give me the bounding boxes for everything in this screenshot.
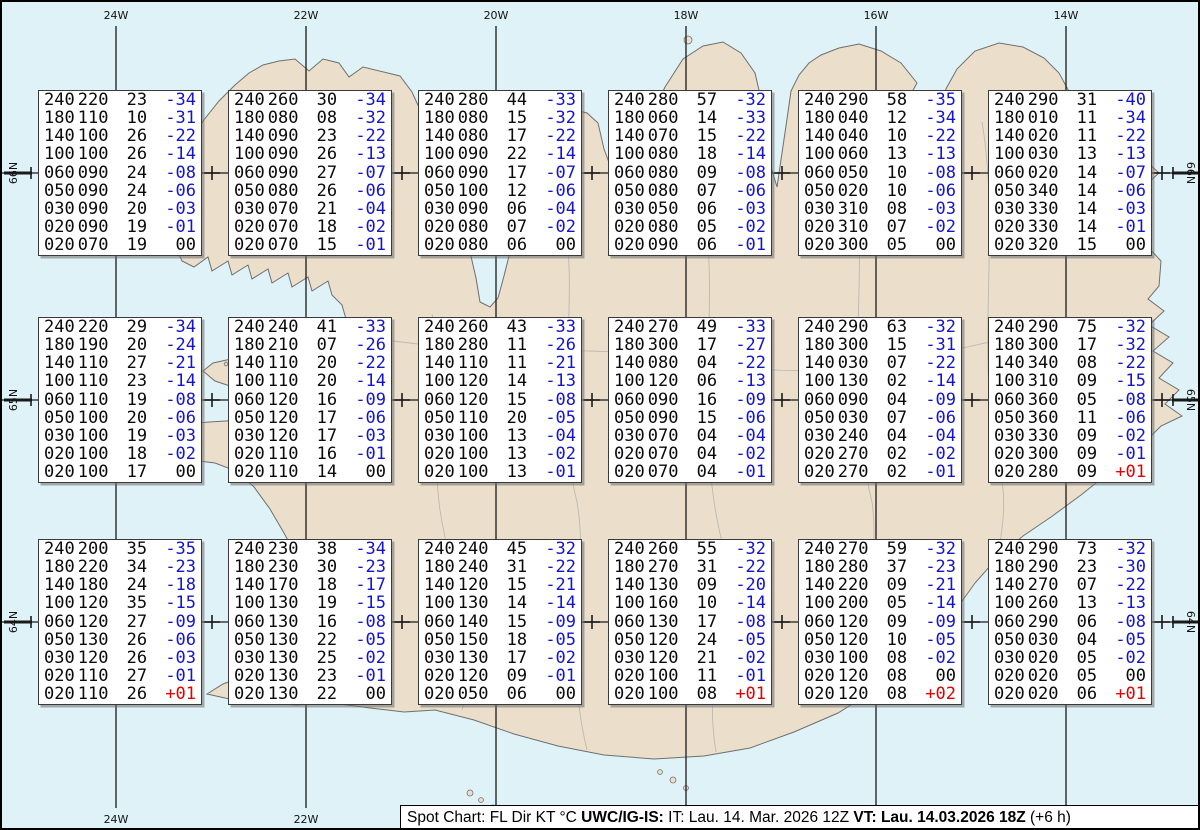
- fl-value: 020: [804, 237, 835, 255]
- fl-value: 100: [424, 373, 455, 391]
- caption-segment: Spot Chart: FL Dir KT °C: [407, 809, 581, 827]
- fl-value: 030: [44, 428, 75, 446]
- temp-value: -06: [545, 183, 576, 201]
- spot-table: 24029073-3218029023-3014027007-221002601…: [988, 539, 1152, 705]
- fl-value: 060: [614, 392, 645, 410]
- dir-value: 120: [458, 392, 489, 410]
- kt-value: 14: [1077, 183, 1097, 201]
- spot-row: 10013019-15: [234, 595, 386, 613]
- dir-value: 290: [1028, 614, 1059, 632]
- lon-label-top: 16W: [864, 9, 889, 22]
- temp-value: +01: [735, 686, 766, 704]
- spot-row: 06002014-07: [994, 165, 1146, 183]
- fl-value: 030: [614, 428, 645, 446]
- spot-row: 03012017-03: [234, 428, 386, 446]
- temp-value: -05: [545, 632, 576, 650]
- temp-value: -09: [165, 614, 196, 632]
- kt-value: 06: [697, 201, 717, 219]
- temp-value: -06: [735, 183, 766, 201]
- fl-value: 060: [424, 392, 455, 410]
- fl-value: 060: [994, 165, 1025, 183]
- kt-value: 20: [127, 410, 147, 428]
- fl-value: 030: [424, 201, 455, 219]
- spot-row: 0201101400: [234, 464, 386, 482]
- fl-value: 020: [804, 464, 835, 482]
- spot-row: 05013026-06: [44, 632, 196, 650]
- dir-value: 130: [268, 650, 299, 668]
- fl-value: 030: [994, 650, 1025, 668]
- temp-value: -14: [165, 146, 196, 164]
- spot-row: 03009020-03: [44, 201, 196, 219]
- spot-row: 03007004-04: [614, 428, 766, 446]
- fl-value: 050: [614, 410, 645, 428]
- fl-value: 030: [804, 201, 835, 219]
- dir-value: 130: [268, 595, 299, 613]
- temp-value: -07: [355, 165, 386, 183]
- kt-value: 21: [317, 201, 337, 219]
- spot-row: 06011019-08: [44, 392, 196, 410]
- temp-value: -08: [545, 392, 576, 410]
- kt-value: 10: [887, 632, 907, 650]
- kt-value: 16: [317, 392, 337, 410]
- kt-value: 18: [507, 632, 527, 650]
- spot-row: 02010013-01: [424, 464, 576, 482]
- spot-row: 02007015-01: [234, 237, 386, 255]
- temp-value: -08: [165, 392, 196, 410]
- kt-value: 07: [887, 410, 907, 428]
- fl-value: 060: [804, 392, 835, 410]
- fl-value: 020: [234, 464, 265, 482]
- temp-value: -14: [735, 146, 766, 164]
- spot-table: 24027049-3318030017-2714008004-221001200…: [608, 317, 772, 483]
- kt-value: 21: [697, 650, 717, 668]
- lon-label-bottom: 22W: [294, 813, 319, 826]
- kt-value: 08: [887, 201, 907, 219]
- kt-value: 09: [887, 614, 907, 632]
- dir-value: 070: [268, 237, 299, 255]
- temp-value: -09: [545, 614, 576, 632]
- dir-value: 200: [838, 595, 869, 613]
- temp-value: -05: [545, 410, 576, 428]
- fl-value: 050: [804, 410, 835, 428]
- fl-value: 020: [234, 237, 265, 255]
- spot-table: 24029075-3218030017-3214034008-221003100…: [988, 317, 1152, 483]
- temp-value: -06: [165, 632, 196, 650]
- caption-bar: Spot Chart: FL Dir KT °C UWC/IG-IS: IT: …: [400, 805, 1200, 830]
- lat-label-left: 66N: [7, 162, 20, 184]
- temp-value: -04: [735, 428, 766, 446]
- fl-value: 060: [994, 392, 1025, 410]
- temp-value: -04: [545, 428, 576, 446]
- fl-value: 060: [614, 165, 645, 183]
- spot-row: 06009016-09: [614, 392, 766, 410]
- temp-value: 00: [545, 237, 576, 255]
- dir-value: 310: [838, 201, 869, 219]
- temp-value: -06: [925, 183, 956, 201]
- spot-table: 24026043-3318028011-2614011011-211001201…: [418, 317, 582, 483]
- fl-value: 030: [234, 201, 265, 219]
- spot-row: 10012035-15: [44, 595, 196, 613]
- dir-value: 110: [268, 373, 299, 391]
- spot-row: 05034014-06: [994, 183, 1146, 201]
- temp-value: 00: [545, 686, 576, 704]
- kt-value: 13: [1077, 146, 1097, 164]
- fl-value: 030: [614, 201, 645, 219]
- fl-value: 030: [804, 428, 835, 446]
- spot-table: 24029063-3218030015-3114003007-221001300…: [798, 317, 962, 483]
- kt-value: 06: [507, 686, 527, 704]
- temp-value: 00: [165, 237, 196, 255]
- dir-value: 080: [648, 165, 679, 183]
- temp-value: -06: [355, 410, 386, 428]
- dir-value: 090: [838, 392, 869, 410]
- lat-label-right: 66N: [1184, 162, 1197, 184]
- fl-value: 020: [804, 686, 835, 704]
- kt-value: 05: [1077, 650, 1097, 668]
- dir-value: 100: [78, 410, 109, 428]
- kt-value: 06: [1077, 614, 1097, 632]
- spot-row: 03031008-03: [804, 201, 956, 219]
- kt-value: 15: [507, 392, 527, 410]
- fl-value: 050: [44, 183, 75, 201]
- spot-row: 10012014-13: [424, 373, 576, 391]
- spot-row: 05011020-05: [424, 410, 576, 428]
- temp-value: 00: [355, 686, 386, 704]
- dir-value: 110: [458, 410, 489, 428]
- fl-value: 100: [424, 595, 455, 613]
- kt-value: 05: [887, 237, 907, 255]
- spot-row: 10006013-13: [804, 146, 956, 164]
- spot-table: 24023038-3418023030-2314017018-171001301…: [228, 539, 392, 705]
- kt-value: 06: [1077, 686, 1097, 704]
- spot-row: 05012024-05: [614, 632, 766, 650]
- kt-value: 02: [887, 373, 907, 391]
- spot-row: 02027002-01: [804, 464, 956, 482]
- dir-value: 300: [838, 237, 869, 255]
- temp-value: -08: [355, 614, 386, 632]
- dir-value: 100: [78, 146, 109, 164]
- spot-row: 10003013-13: [994, 146, 1146, 164]
- dir-value: 090: [458, 146, 489, 164]
- temp-value: -15: [165, 595, 196, 613]
- kt-value: 14: [1077, 201, 1097, 219]
- temp-value: -02: [1115, 428, 1146, 446]
- dir-value: 360: [1028, 392, 1059, 410]
- kt-value: 25: [317, 650, 337, 668]
- spot-row: 03024004-04: [804, 428, 956, 446]
- fl-value: 060: [234, 165, 265, 183]
- dir-value: 090: [648, 410, 679, 428]
- kt-value: 18: [697, 146, 717, 164]
- spot-row: 06013017-08: [614, 614, 766, 632]
- fl-value: 020: [424, 464, 455, 482]
- temp-value: -02: [1115, 650, 1146, 668]
- dir-value: 120: [838, 686, 869, 704]
- dir-value: 100: [458, 464, 489, 482]
- fl-value: 100: [234, 146, 265, 164]
- dir-value: 150: [458, 632, 489, 650]
- temp-value: -04: [925, 428, 956, 446]
- dir-value: 130: [268, 632, 299, 650]
- spot-row: 06009027-07: [234, 165, 386, 183]
- spot-row: 10009026-13: [234, 146, 386, 164]
- dir-value: 020: [838, 183, 869, 201]
- spot-row: 02012008+02: [804, 686, 956, 704]
- dir-value: 100: [838, 650, 869, 668]
- dir-value: 110: [78, 392, 109, 410]
- spot-row: 05015018-05: [424, 632, 576, 650]
- dir-value: 130: [838, 373, 869, 391]
- temp-value: +02: [925, 686, 956, 704]
- fl-value: 050: [44, 632, 75, 650]
- kt-value: 17: [697, 614, 717, 632]
- fl-value: 020: [614, 237, 645, 255]
- spot-row: 03033014-03: [994, 201, 1146, 219]
- temp-value: -01: [735, 464, 766, 482]
- spot-row: 03007021-04: [234, 201, 386, 219]
- kt-value: 27: [317, 165, 337, 183]
- dir-value: 270: [838, 464, 869, 482]
- fl-value: 100: [44, 595, 75, 613]
- dir-value: 090: [268, 165, 299, 183]
- temp-value: +01: [165, 686, 196, 704]
- kt-value: 20: [127, 201, 147, 219]
- dir-value: 080: [648, 146, 679, 164]
- kt-value: 15: [697, 410, 717, 428]
- dir-value: 090: [268, 146, 299, 164]
- temp-value: -09: [925, 392, 956, 410]
- dir-value: 120: [458, 373, 489, 391]
- kt-value: 24: [697, 632, 717, 650]
- temp-value: -06: [925, 410, 956, 428]
- kt-value: 15: [507, 614, 527, 632]
- temp-value: 00: [1115, 237, 1146, 255]
- dir-value: 330: [1028, 201, 1059, 219]
- temp-value: -02: [925, 650, 956, 668]
- spot-row: 05009015-06: [614, 410, 766, 428]
- fl-value: 050: [994, 183, 1025, 201]
- lat-label-right: 65N: [1184, 389, 1197, 411]
- kt-value: 19: [127, 237, 147, 255]
- fl-value: 100: [44, 373, 75, 391]
- fl-value: 100: [994, 595, 1025, 613]
- dir-value: 330: [1028, 428, 1059, 446]
- kt-value: 22: [317, 632, 337, 650]
- spot-row: 0201001700: [44, 464, 196, 482]
- temp-value: -14: [545, 595, 576, 613]
- fl-value: 100: [44, 146, 75, 164]
- spot-row: 03013017-02: [424, 650, 576, 668]
- fl-value: 100: [234, 595, 265, 613]
- temp-value: -04: [545, 201, 576, 219]
- spot-table: 24022023-3418011010-3114010026-221001002…: [38, 90, 202, 256]
- fl-value: 060: [44, 614, 75, 632]
- lat-label-left: 65N: [7, 389, 20, 411]
- fl-value: 030: [44, 201, 75, 219]
- temp-value: -01: [355, 237, 386, 255]
- caption-segment: UWC/IG-IS:: [581, 809, 664, 827]
- temp-value: -06: [1115, 183, 1146, 201]
- spot-row: 06012015-08: [424, 392, 576, 410]
- spot-row: 0201302200: [234, 686, 386, 704]
- kt-value: 17: [507, 165, 527, 183]
- kt-value: 17: [127, 464, 147, 482]
- temp-value: -14: [735, 595, 766, 613]
- dir-value: 240: [838, 428, 869, 446]
- lon-label-top: 24W: [104, 9, 129, 22]
- dir-value: 090: [458, 201, 489, 219]
- fl-value: 060: [44, 165, 75, 183]
- dir-value: 020: [1028, 686, 1059, 704]
- spot-row: 02007004-01: [614, 464, 766, 482]
- fl-value: 020: [424, 237, 455, 255]
- spot-row: 10020005-14: [804, 595, 956, 613]
- kt-value: 13: [887, 146, 907, 164]
- spot-row: 05012017-06: [234, 410, 386, 428]
- fl-value: 050: [424, 632, 455, 650]
- spot-row: 03033009-02: [994, 428, 1146, 446]
- spot-row: 05003007-06: [804, 410, 956, 428]
- spot-row: 02010008+01: [614, 686, 766, 704]
- temp-value: -03: [165, 428, 196, 446]
- dir-value: 050: [838, 165, 869, 183]
- fl-value: 100: [994, 146, 1025, 164]
- dir-value: 310: [1028, 373, 1059, 391]
- temp-value: -07: [545, 165, 576, 183]
- spot-row: 10013002-14: [804, 373, 956, 391]
- kt-value: 02: [887, 464, 907, 482]
- kt-value: 17: [317, 410, 337, 428]
- dir-value: 030: [1028, 146, 1059, 164]
- temp-value: 00: [165, 464, 196, 482]
- dir-value: 110: [78, 373, 109, 391]
- temp-value: -01: [545, 464, 576, 482]
- kt-value: 19: [127, 428, 147, 446]
- spot-row: 10011023-14: [44, 373, 196, 391]
- spot-row: 05013022-05: [234, 632, 386, 650]
- dir-value: 120: [838, 614, 869, 632]
- fl-value: 060: [424, 614, 455, 632]
- temp-value: -05: [1115, 632, 1146, 650]
- fl-value: 030: [804, 650, 835, 668]
- kt-value: 27: [127, 614, 147, 632]
- kt-value: 19: [127, 392, 147, 410]
- temp-value: -03: [165, 201, 196, 219]
- temp-value: -14: [355, 373, 386, 391]
- kt-value: 07: [697, 183, 717, 201]
- temp-value: -06: [735, 410, 766, 428]
- fl-value: 030: [994, 201, 1025, 219]
- kt-value: 06: [507, 237, 527, 255]
- kt-value: 14: [507, 595, 527, 613]
- dir-value: 090: [78, 165, 109, 183]
- spot-table: 24020035-3518022034-2314018024-181001203…: [38, 539, 202, 705]
- kt-value: 26: [127, 686, 147, 704]
- dir-value: 090: [648, 392, 679, 410]
- fl-value: 050: [994, 632, 1025, 650]
- dir-value: 030: [1028, 632, 1059, 650]
- kt-value: 05: [1077, 392, 1097, 410]
- temp-value: -05: [355, 632, 386, 650]
- fl-value: 030: [234, 428, 265, 446]
- dir-value: 050: [648, 201, 679, 219]
- temp-value: -05: [925, 632, 956, 650]
- fl-value: 060: [424, 165, 455, 183]
- dir-value: 120: [648, 632, 679, 650]
- dir-value: 100: [458, 183, 489, 201]
- temp-value: -13: [1115, 595, 1146, 613]
- dir-value: 100: [648, 686, 679, 704]
- dir-value: 080: [268, 183, 299, 201]
- kt-value: 13: [1077, 595, 1097, 613]
- lat-label-right: 64N: [1184, 611, 1197, 633]
- fl-value: 050: [804, 183, 835, 201]
- fl-value: 020: [614, 464, 645, 482]
- dir-value: 070: [648, 428, 679, 446]
- temp-value: 00: [355, 464, 386, 482]
- fl-value: 020: [44, 237, 75, 255]
- spot-row: 06008009-08: [614, 165, 766, 183]
- temp-value: -06: [355, 183, 386, 201]
- caption-segment: VT: Lau. 14.03.2026 18Z: [853, 809, 1025, 827]
- kt-value: 04: [1077, 632, 1097, 650]
- kt-value: 11: [1077, 410, 1097, 428]
- lon-label-top: 18W: [674, 9, 699, 22]
- kt-value: 26: [317, 183, 337, 201]
- dir-value: 120: [268, 392, 299, 410]
- fl-value: 030: [44, 650, 75, 668]
- spot-row: 0200500600: [424, 686, 576, 704]
- fl-value: 100: [614, 146, 645, 164]
- dir-value: 020: [1028, 165, 1059, 183]
- spot-row: 0200701900: [44, 237, 196, 255]
- kt-value: 04: [887, 428, 907, 446]
- fl-value: 020: [234, 686, 265, 704]
- kt-value: 08: [697, 686, 717, 704]
- kt-value: 14: [317, 464, 337, 482]
- fl-value: 100: [234, 373, 265, 391]
- dir-value: 160: [648, 595, 679, 613]
- kt-value: 04: [697, 464, 717, 482]
- temp-value: -03: [925, 201, 956, 219]
- dir-value: 130: [648, 614, 679, 632]
- dir-value: 080: [648, 183, 679, 201]
- temp-value: -09: [735, 392, 766, 410]
- dir-value: 280: [1028, 464, 1059, 482]
- kt-value: 06: [697, 237, 717, 255]
- kt-value: 26: [317, 146, 337, 164]
- fl-value: 030: [234, 650, 265, 668]
- spot-row: 02011026+01: [44, 686, 196, 704]
- kt-value: 10: [887, 165, 907, 183]
- kt-value: 24: [127, 183, 147, 201]
- temp-value: -06: [165, 183, 196, 201]
- fl-value: 060: [234, 614, 265, 632]
- fl-value: 060: [994, 614, 1025, 632]
- spot-row: 0203000500: [804, 237, 956, 255]
- temp-value: -08: [1115, 614, 1146, 632]
- spot-table: 24026055-3218027031-2214013009-201001601…: [608, 539, 772, 705]
- kt-value: 09: [1077, 464, 1097, 482]
- kt-value: 20: [317, 373, 337, 391]
- spot-row: 10010026-14: [44, 146, 196, 164]
- spot-table: 24022029-3418019020-2414011027-211001102…: [38, 317, 202, 483]
- spot-row: 10011020-14: [234, 373, 386, 391]
- spot-row: 02009006-01: [614, 237, 766, 255]
- spot-row: 05010012-06: [424, 183, 576, 201]
- kt-value: 13: [507, 464, 527, 482]
- fl-value: 050: [234, 410, 265, 428]
